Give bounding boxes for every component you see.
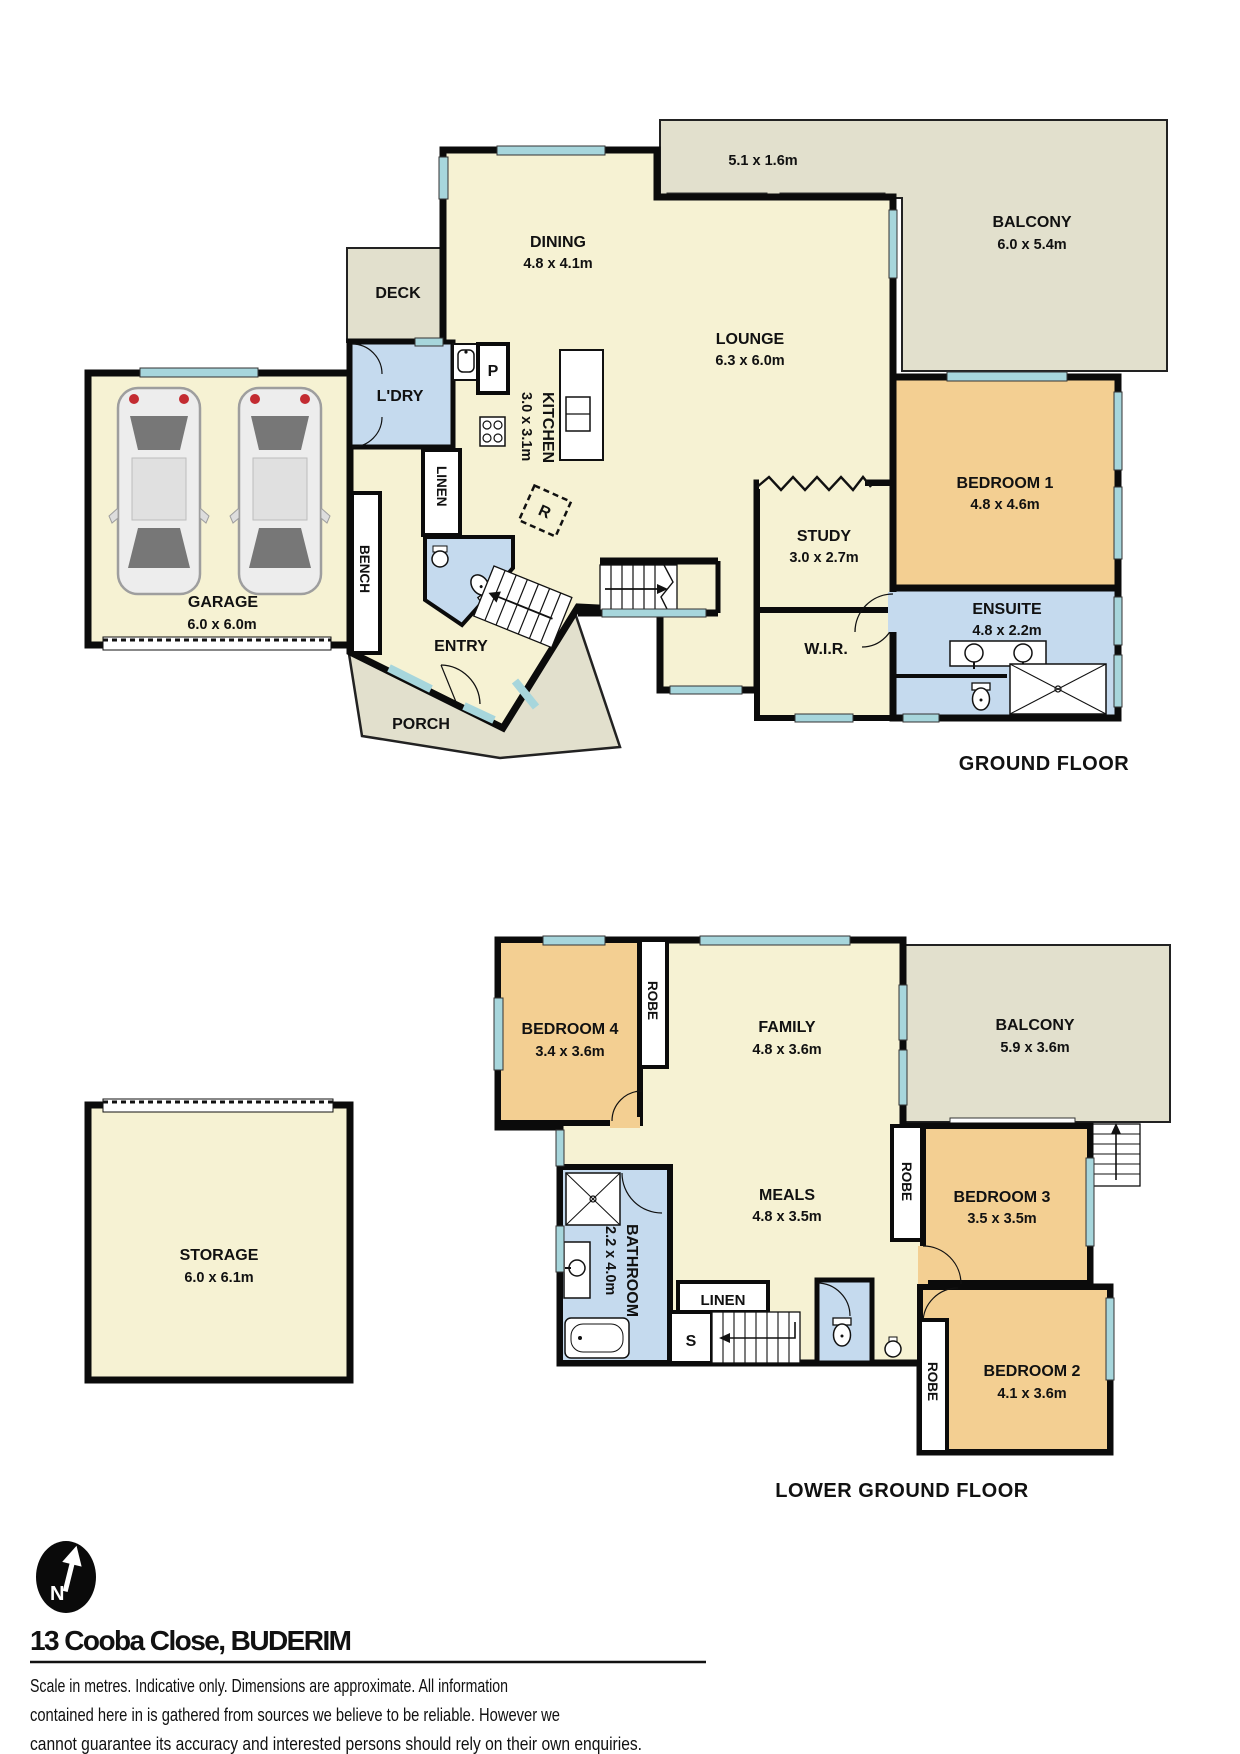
ensuite-dims: 4.8 x 2.2m bbox=[972, 623, 1041, 639]
window bbox=[494, 998, 503, 1070]
window bbox=[543, 936, 605, 945]
s-label: S bbox=[686, 1333, 697, 1350]
robe3-label: ROBE bbox=[899, 1162, 914, 1201]
lounge-label: LOUNGE bbox=[716, 331, 785, 348]
garage-dims: 6.0 x 6.0m bbox=[187, 617, 256, 633]
window bbox=[556, 1226, 564, 1272]
window bbox=[602, 609, 706, 617]
storage-dims: 6.0 x 6.1m bbox=[184, 1270, 253, 1286]
gf-balcony-label: BALCONY bbox=[992, 214, 1071, 231]
window bbox=[415, 338, 443, 346]
lower-ground-floor-label: LOWER GROUND FLOOR bbox=[775, 1480, 1028, 1502]
bedroom3-label: BEDROOM 3 bbox=[954, 1189, 1051, 1206]
bedroom3-dims: 3.5 x 3.5m bbox=[967, 1211, 1036, 1227]
lgf-balcony-label: BALCONY bbox=[995, 1017, 1074, 1034]
dining-label: DINING bbox=[530, 234, 586, 251]
toilet-icon bbox=[833, 1318, 851, 1346]
family-label: FAMILY bbox=[758, 1019, 816, 1036]
garage-door bbox=[103, 1099, 333, 1112]
meals-label: MEALS bbox=[759, 1187, 815, 1204]
floorplan-page: R bbox=[0, 0, 1240, 1754]
window bbox=[1114, 392, 1122, 470]
robe2-label: ROBE bbox=[925, 1362, 940, 1401]
kitchen-dims: 3.0 x 3.1m bbox=[518, 392, 534, 461]
gf-linen-label: LINEN bbox=[434, 466, 449, 507]
kitchen-label: KITCHEN bbox=[539, 392, 556, 463]
window bbox=[556, 1130, 564, 1166]
floorplan-svg: R bbox=[0, 0, 1240, 1754]
window bbox=[903, 714, 939, 722]
lgf-balcony-dims: 5.9 x 3.6m bbox=[1000, 1040, 1069, 1056]
window bbox=[795, 714, 853, 722]
basin-icon bbox=[569, 1260, 585, 1276]
lower-ground-floor-plan: BEDROOM 4 3.4 x 3.6m ROBE FAMILY 4.8 x 3… bbox=[88, 936, 1170, 1502]
ground-floor-plan: R bbox=[88, 120, 1167, 775]
study-label: STUDY bbox=[797, 528, 852, 545]
entry-label: ENTRY bbox=[434, 638, 488, 655]
window bbox=[670, 686, 742, 694]
lounge-dims: 6.3 x 6.0m bbox=[715, 353, 784, 369]
car-icon bbox=[230, 388, 330, 594]
window bbox=[1086, 1158, 1094, 1246]
window bbox=[899, 985, 907, 1040]
laundry-label: L'DRY bbox=[377, 388, 424, 405]
disclaimer-line: contained here in is gathered from sourc… bbox=[30, 1705, 560, 1725]
window bbox=[700, 936, 850, 945]
gf-wir-area bbox=[757, 610, 895, 718]
garage-label: GARAGE bbox=[188, 594, 259, 611]
address: 13 Cooba Close, BUDERIM bbox=[30, 1625, 352, 1656]
ensuite-label: ENSUITE bbox=[972, 601, 1042, 618]
window bbox=[1114, 487, 1122, 559]
window bbox=[1114, 597, 1122, 645]
window bbox=[947, 372, 1067, 381]
ground-floor-label: GROUND FLOOR bbox=[959, 753, 1129, 775]
robe4-label: ROBE bbox=[645, 981, 660, 1020]
deck-label: DECK bbox=[375, 285, 421, 302]
meals-dims: 4.8 x 3.5m bbox=[752, 1209, 821, 1225]
pantry-label: P bbox=[488, 363, 499, 380]
window bbox=[439, 157, 448, 199]
bedroom2-dims: 4.1 x 3.6m bbox=[997, 1386, 1066, 1402]
window bbox=[899, 1050, 907, 1105]
study-dims: 3.0 x 2.7m bbox=[789, 550, 858, 566]
bathroom-label: BATHROOM bbox=[623, 1224, 640, 1317]
bedroom2-label: BEDROOM 2 bbox=[984, 1363, 1081, 1380]
north-label: N bbox=[50, 1583, 64, 1605]
stairs-external bbox=[1092, 1123, 1140, 1186]
cooktop-icon bbox=[480, 417, 505, 446]
bedroom4-label: BEDROOM 4 bbox=[522, 1021, 619, 1038]
family-dims: 4.8 x 3.6m bbox=[752, 1042, 821, 1058]
basin-icon bbox=[1014, 644, 1032, 662]
storage-label: STORAGE bbox=[180, 1247, 259, 1264]
basin-icon bbox=[965, 644, 983, 662]
tap-icon bbox=[464, 350, 467, 353]
gf-study-area bbox=[757, 483, 893, 610]
disclaimer-line: cannot guarantee its accuracy and intere… bbox=[30, 1734, 642, 1754]
car-icon bbox=[109, 388, 209, 594]
bench-label: BENCH bbox=[357, 545, 372, 593]
gf-balcony-dims: 6.0 x 5.4m bbox=[997, 237, 1066, 253]
toilet-icon bbox=[972, 683, 990, 710]
bedroom4-dims: 3.4 x 3.6m bbox=[535, 1044, 604, 1060]
window bbox=[497, 146, 605, 155]
footer: N 13 Cooba Close, BUDERIM Scale in metre… bbox=[30, 1541, 706, 1754]
basin-icon bbox=[885, 1341, 901, 1357]
stairs-internal bbox=[712, 1312, 800, 1363]
window bbox=[889, 210, 897, 278]
window bbox=[1114, 655, 1122, 707]
disclaimer-line: Scale in metres. Indicative only. Dimens… bbox=[30, 1676, 508, 1696]
dining-dims: 4.8 x 4.1m bbox=[523, 256, 592, 272]
wir-label: W.I.R. bbox=[804, 641, 848, 658]
window bbox=[1106, 1298, 1114, 1380]
north-arrow-icon: N bbox=[36, 1541, 96, 1613]
window bbox=[140, 368, 258, 377]
bathroom-dims: 2.2 x 4.0m bbox=[602, 1226, 618, 1295]
lgf-linen-label: LINEN bbox=[701, 1292, 746, 1309]
balcony-strip-dims: 5.1 x 1.6m bbox=[728, 153, 797, 169]
porch-label: PORCH bbox=[392, 716, 450, 733]
bedroom1-dims: 4.8 x 4.6m bbox=[970, 497, 1039, 513]
basin-icon bbox=[432, 551, 448, 567]
bedroom1-label: BEDROOM 1 bbox=[957, 475, 1054, 492]
lgf-storage-area bbox=[88, 1105, 350, 1380]
